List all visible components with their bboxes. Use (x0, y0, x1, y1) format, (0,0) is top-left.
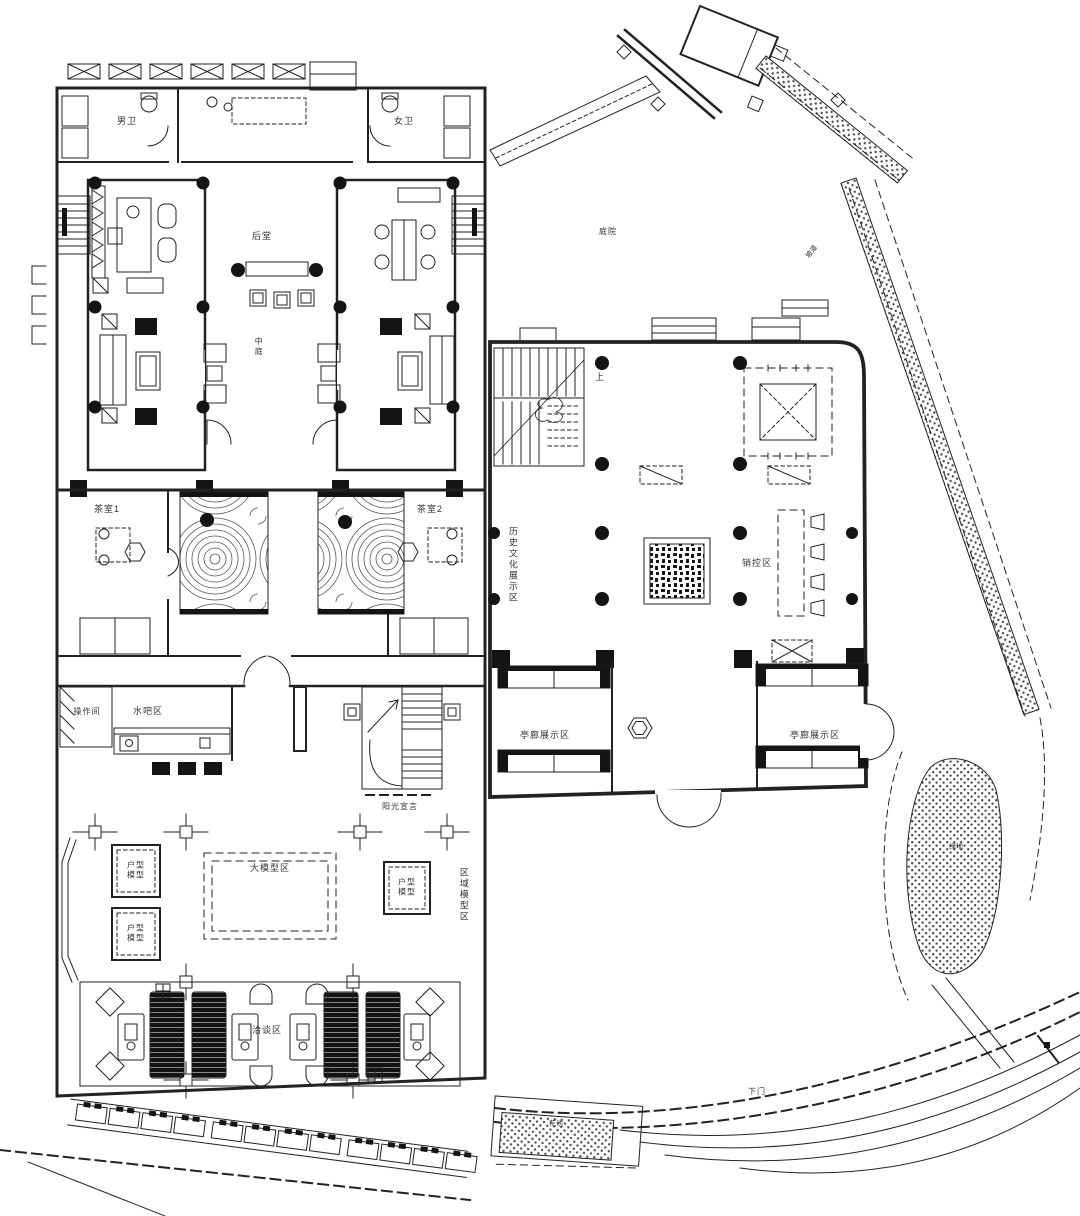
label-unit-model-3: 户型 模型 (398, 878, 416, 899)
label-negotiation: 洽谈区 (252, 1025, 282, 1037)
south-terrace-planters (68, 1099, 478, 1178)
label-rear-hall: 后堂 (252, 231, 272, 243)
floor-plan-page: 男卫 女卫 后堂 中庭 茶室1 茶室2 历史文化展示区 销控区 亭廊展示区 亭廊… (0, 0, 1080, 1216)
label-gate: 下门 (748, 1087, 766, 1097)
left-building (56, 62, 485, 1178)
mosaic-feature (650, 544, 704, 598)
label-sunshine: 阳光宣言 (382, 802, 418, 812)
label-tea-room-1: 茶室1 (94, 504, 120, 516)
roof-planter-row (68, 62, 356, 90)
label-green-bed: 绿地 (949, 842, 963, 851)
zen-garden-right (318, 492, 404, 614)
planting-strip-east (841, 178, 1039, 715)
south-planter-box (490, 1096, 642, 1174)
label-tea-room-2: 茶室2 (417, 504, 443, 516)
label-flower-strip: 花池 (549, 1119, 563, 1128)
label-water-bar: 水吧区 (133, 706, 163, 718)
label-sales-control: 销控区 (742, 558, 772, 570)
label-mens-wc: 男卫 (117, 116, 137, 128)
label-large-model: 大模型区 (250, 863, 290, 875)
label-stair-up: 上 (595, 372, 605, 384)
label-pavilion-right: 亭廊展示区 (790, 730, 840, 742)
label-atrium: 中庭 (253, 337, 263, 357)
label-unit-model-2: 户型 模型 (127, 924, 145, 945)
leaf-planting-bed (907, 759, 1002, 974)
label-pavilion-left: 亭廊展示区 (520, 730, 570, 742)
right-building (488, 300, 894, 827)
floor-plan-drawing (0, 0, 1080, 1216)
label-history-zone: 历史文化展示区 (506, 527, 518, 604)
zen-garden-left (180, 492, 268, 614)
planting-strip-ne (756, 56, 908, 183)
east-doors (866, 704, 894, 760)
label-unit-model-1: 户型 模型 (127, 861, 145, 882)
label-region-model: 区域模型区 (457, 868, 469, 923)
label-site-yard: 庭院 (599, 227, 617, 237)
label-womens-wc: 女卫 (394, 116, 414, 128)
label-operation-room: 操作间 (74, 707, 101, 717)
